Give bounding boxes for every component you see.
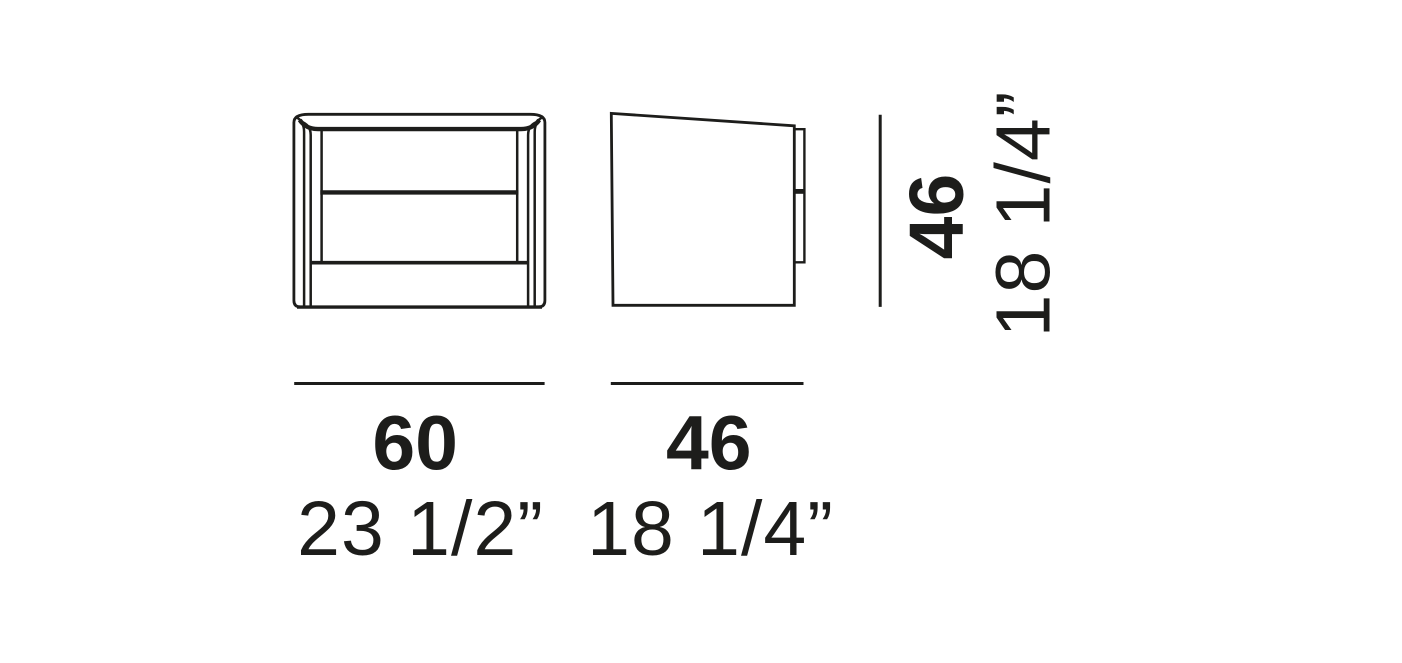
svg-text:18 1/4”: 18 1/4” [981,91,1067,338]
svg-text:46: 46 [666,400,752,486]
svg-text:60: 60 [372,400,458,486]
svg-text:46: 46 [894,174,980,260]
svg-text:23 1/2”: 23 1/2” [297,486,544,572]
svg-text:18 1/4”: 18 1/4” [587,486,834,572]
